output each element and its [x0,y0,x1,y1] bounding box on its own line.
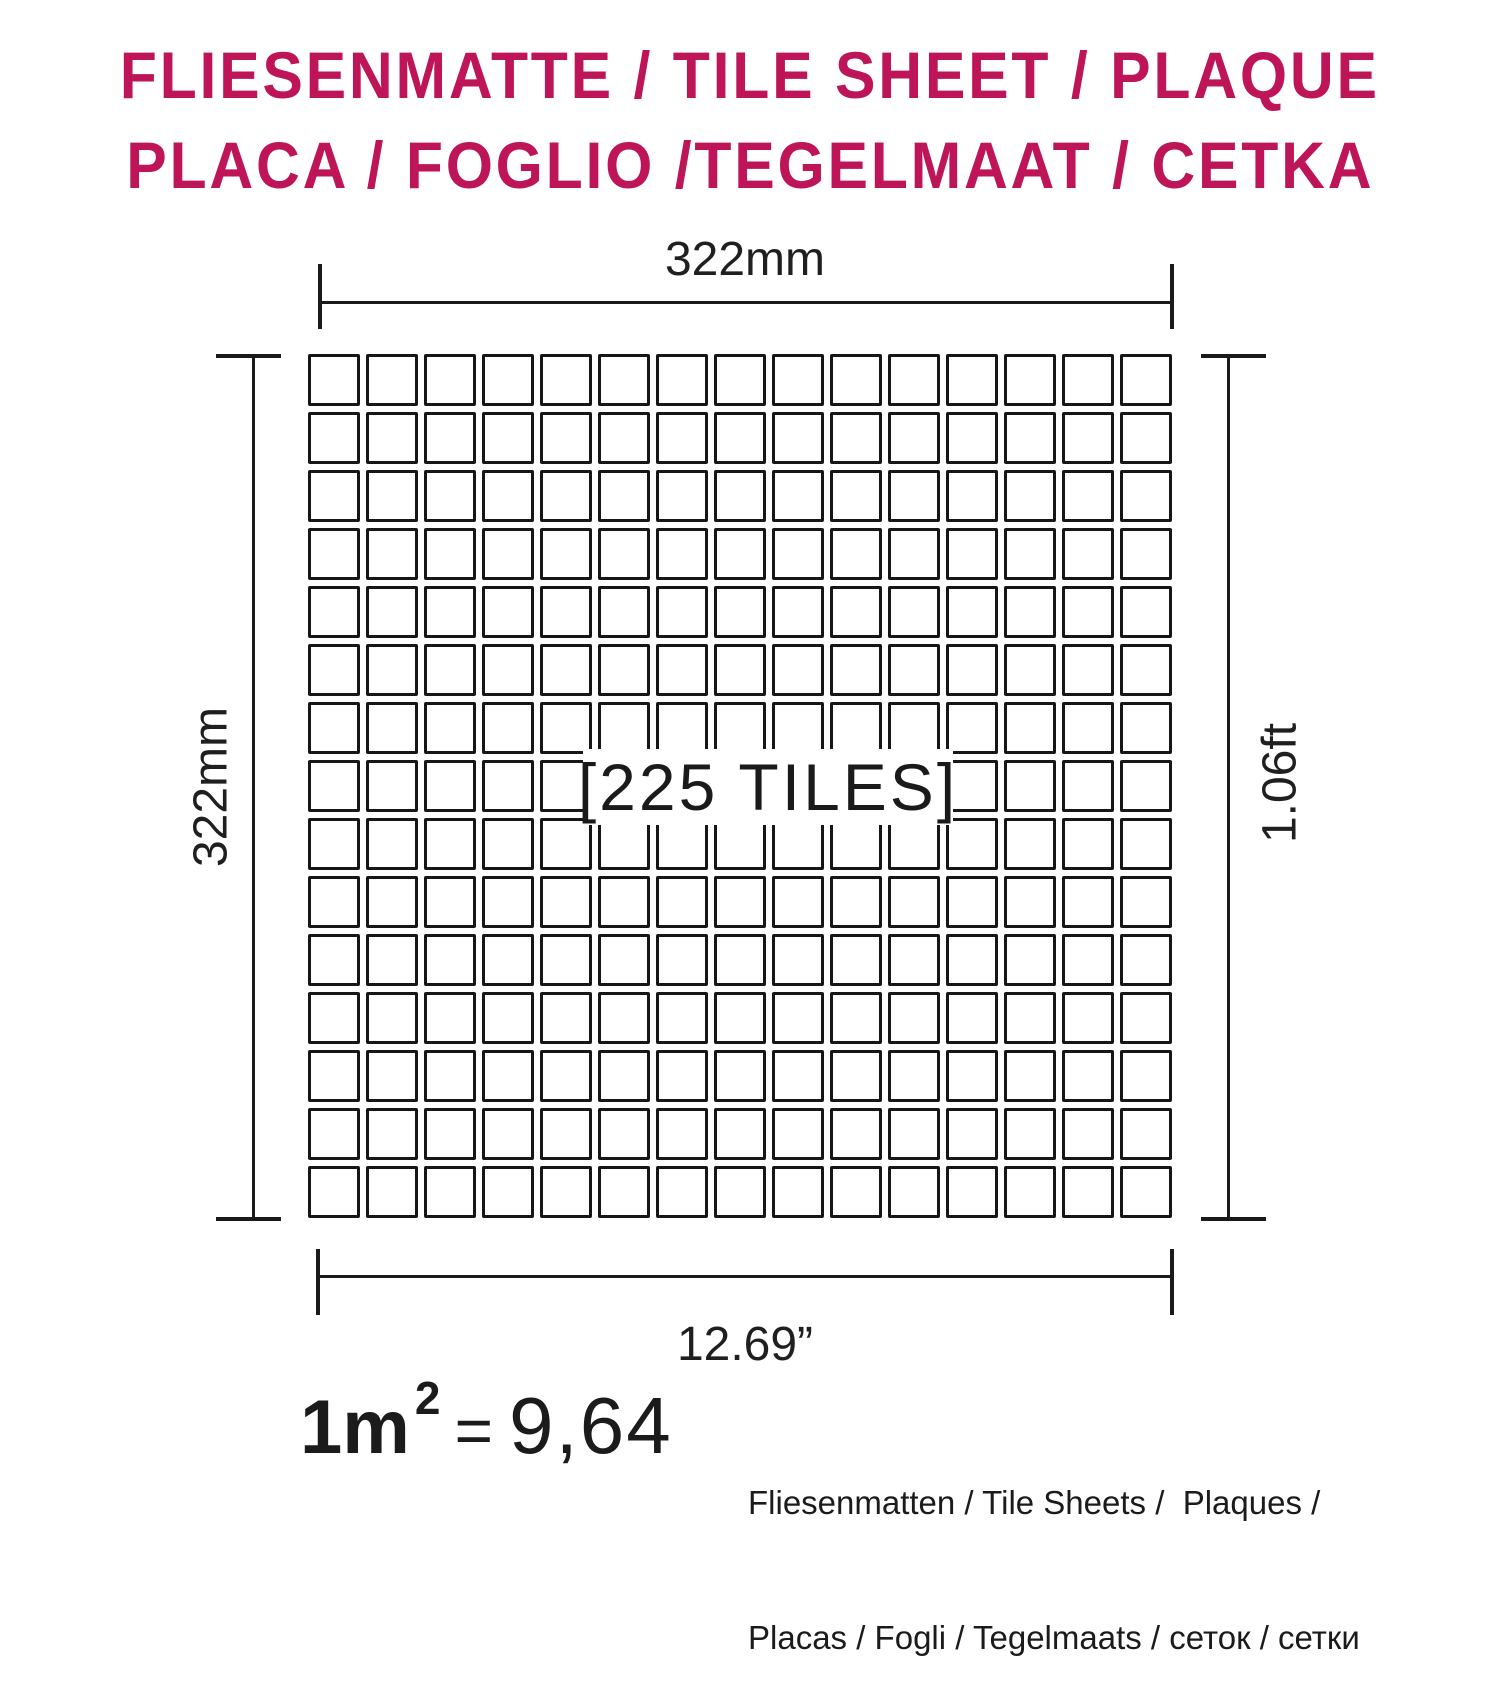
tile [1120,528,1172,580]
tile [888,470,940,522]
tile [1062,992,1114,1044]
tile [1062,1166,1114,1218]
tile [424,528,476,580]
tile [482,934,534,986]
tile [540,934,592,986]
tile [1004,1166,1056,1218]
tile [1062,702,1114,754]
tile [888,702,940,754]
tile [714,934,766,986]
tile [1120,412,1172,464]
tile [424,470,476,522]
tile [482,876,534,928]
tile [540,992,592,1044]
tile [366,354,418,406]
tile [888,1050,940,1102]
tile [656,1166,708,1218]
product-title: FLIESENMATTE / TILE SHEET / PLAQUE PLACA… [0,30,1500,210]
tile [308,876,360,928]
tile [946,644,998,696]
tile [772,470,824,522]
tile [888,876,940,928]
tile [830,992,882,1044]
tile [830,586,882,638]
tile [888,528,940,580]
tile [366,1166,418,1218]
tile [366,934,418,986]
tile [482,586,534,638]
tile [308,1166,360,1218]
tile [1004,412,1056,464]
tile [714,1108,766,1160]
tile [946,1166,998,1218]
tile [598,354,650,406]
tile [1004,702,1056,754]
tile [308,992,360,1044]
tile [482,1108,534,1160]
tile [714,354,766,406]
tile [366,586,418,638]
tile [1120,1108,1172,1160]
tile [772,412,824,464]
tile [424,992,476,1044]
dimension-label-top: 322mm [595,232,895,287]
tile [598,1166,650,1218]
tile [1004,1050,1056,1102]
tile [830,470,882,522]
tile [1062,1108,1114,1160]
tile [366,412,418,464]
dimension-tick-right-top [1201,354,1266,358]
tile [366,702,418,754]
tile [308,760,360,812]
tile [366,644,418,696]
tile [1062,644,1114,696]
tile [366,1108,418,1160]
tile [598,644,650,696]
title-line-2-text: PLACA / FOGLIO /TEGELMAAT / CETKA [126,120,1374,210]
tile [830,412,882,464]
dimension-line-left [252,354,255,1220]
tile [308,644,360,696]
tile [1120,818,1172,870]
tile [830,1050,882,1102]
tile [424,1050,476,1102]
tile [1004,818,1056,870]
tile [772,586,824,638]
tile [308,354,360,406]
tile [714,412,766,464]
tile [366,528,418,580]
tile [946,818,998,870]
tile [366,760,418,812]
tile [540,1108,592,1160]
tile [1004,992,1056,1044]
tile [656,528,708,580]
tile [946,354,998,406]
tile [656,702,708,754]
tile [424,1166,476,1218]
tile [714,470,766,522]
formula-equals-sign: = [454,1397,493,1463]
tile [540,818,592,870]
tile [772,992,824,1044]
tile [424,586,476,638]
tile [888,934,940,986]
tile [656,992,708,1044]
tile [772,1108,824,1160]
tile [888,354,940,406]
dimension-line-right [1227,354,1230,1220]
tile [656,470,708,522]
tile [1004,528,1056,580]
tile [714,644,766,696]
tile [1004,934,1056,986]
tile [656,934,708,986]
tile [598,934,650,986]
tile [772,354,824,406]
tile [656,876,708,928]
tile [830,702,882,754]
tile [946,586,998,638]
tile [424,876,476,928]
tile [946,992,998,1044]
dimension-tick-bottom-right [1170,1249,1174,1315]
tile [772,702,824,754]
dimension-tick-top-right [1170,264,1174,329]
title-line-1: FLIESENMATTE / TILE SHEET / PLAQUE [0,30,1500,120]
tile [888,586,940,638]
footer-caption-line-2: Placas / Fogli / Tegelmaats / сеток / се… [748,1615,1360,1660]
dimension-tick-bottom-left [316,1249,320,1315]
tile [1120,992,1172,1044]
tile [656,818,708,870]
tile [772,644,824,696]
tile [830,876,882,928]
tile [714,992,766,1044]
tile [540,1050,592,1102]
tile [1062,876,1114,928]
tile [482,1166,534,1218]
tile [656,354,708,406]
dimension-tick-top-left [318,264,322,329]
tile [482,992,534,1044]
tile [598,528,650,580]
tile [424,760,476,812]
tile [1120,1050,1172,1102]
footer-captions: Fliesenmatten / Tile Sheets / Plaques / … [748,1390,1360,1705]
tile [424,644,476,696]
tile [540,876,592,928]
tile [830,528,882,580]
dimension-line-bottom [316,1275,1174,1278]
tile [366,818,418,870]
tile [482,1050,534,1102]
tile [1062,354,1114,406]
title-line-1-text: FLIESENMATTE / TILE SHEET / PLAQUE [120,30,1380,120]
tile [482,702,534,754]
tile [366,470,418,522]
tile [482,528,534,580]
tile [1004,644,1056,696]
tile [598,470,650,522]
tile [598,702,650,754]
tile [1062,528,1114,580]
tile [656,586,708,638]
tile [772,934,824,986]
tile [366,876,418,928]
tile [308,934,360,986]
tile [1004,876,1056,928]
dimension-tick-left-bottom [216,1217,281,1221]
tile [424,934,476,986]
tile [830,818,882,870]
tile [946,876,998,928]
dimension-tick-left-top [216,354,281,358]
tile [714,528,766,580]
tile [946,470,998,522]
tile [540,1166,592,1218]
tile [888,992,940,1044]
tile [598,412,650,464]
tiles-count-label: [225 TILES] [578,749,958,825]
tile [714,586,766,638]
formula-value: 9,64 [509,1386,673,1466]
tile [308,1050,360,1102]
tile [1004,760,1056,812]
tile [772,1166,824,1218]
tile [1120,876,1172,928]
tile [482,818,534,870]
tile [1120,1166,1172,1218]
tile [1120,586,1172,638]
tile [1120,702,1172,754]
tile [830,1108,882,1160]
tile [888,1166,940,1218]
tile [656,1050,708,1102]
tile [366,1050,418,1102]
tile [1004,586,1056,638]
tile [1004,354,1056,406]
tile [714,1166,766,1218]
tile [308,586,360,638]
tile [714,1050,766,1102]
sheets-per-sqm-formula: 1m 2 = 9,64 [300,1386,673,1466]
tile [946,528,998,580]
tile [308,470,360,522]
dimension-line-top [318,301,1174,304]
tile [540,528,592,580]
tile [946,412,998,464]
tile [1120,470,1172,522]
tile [714,702,766,754]
title-line-2: PLACA / FOGLIO /TEGELMAAT / CETKA [0,120,1500,210]
tile [830,354,882,406]
tile [598,818,650,870]
tile [772,876,824,928]
tile [656,412,708,464]
tile [1120,934,1172,986]
tile [1062,412,1114,464]
dimension-label-left: 322mm [184,707,239,867]
tile [1120,354,1172,406]
dimension-tick-right-bottom [1201,1217,1266,1221]
tile [1062,470,1114,522]
tile [482,412,534,464]
dimension-label-bottom: 12.69” [595,1317,895,1372]
tile [424,354,476,406]
tile [540,702,592,754]
tile [772,528,824,580]
tile [656,644,708,696]
tile [830,644,882,696]
tile [1062,586,1114,638]
tile [598,1108,650,1160]
formula-base: 1m [300,1390,410,1466]
tile [598,1050,650,1102]
tile [482,760,534,812]
tile [946,702,998,754]
tile [366,992,418,1044]
tile [714,818,766,870]
tile [1004,1108,1056,1160]
footer-caption-line-1: Fliesenmatten / Tile Sheets / Plaques / [748,1480,1360,1525]
tile [1062,818,1114,870]
tile [1062,1050,1114,1102]
tile [1062,760,1114,812]
tile [540,644,592,696]
tile [308,1108,360,1160]
tile [540,586,592,638]
tile [772,1050,824,1102]
tile [888,818,940,870]
tile [424,702,476,754]
tile [830,934,882,986]
tile [424,412,476,464]
tile [424,1108,476,1160]
tile [946,934,998,986]
tile [714,876,766,928]
tiles-count-box: [225 TILES] [583,749,953,825]
tile [540,470,592,522]
tile [1062,934,1114,986]
tile [308,528,360,580]
formula-exponent: 2 [415,1371,441,1425]
tile [540,354,592,406]
tile [946,1108,998,1160]
tile [830,1166,882,1218]
tile [598,992,650,1044]
tile [308,702,360,754]
dimension-label-right: 1.06ft [1253,723,1308,843]
tile [1120,760,1172,812]
tile [540,412,592,464]
tile [482,470,534,522]
tile [482,644,534,696]
tile [946,1050,998,1102]
tile [1004,470,1056,522]
tile [772,818,824,870]
tile [1120,644,1172,696]
tile [482,354,534,406]
tile [308,412,360,464]
tile [888,1108,940,1160]
tile [888,644,940,696]
tile [656,1108,708,1160]
tile [888,412,940,464]
tile [598,876,650,928]
tile [598,586,650,638]
tile [308,818,360,870]
tile [424,818,476,870]
